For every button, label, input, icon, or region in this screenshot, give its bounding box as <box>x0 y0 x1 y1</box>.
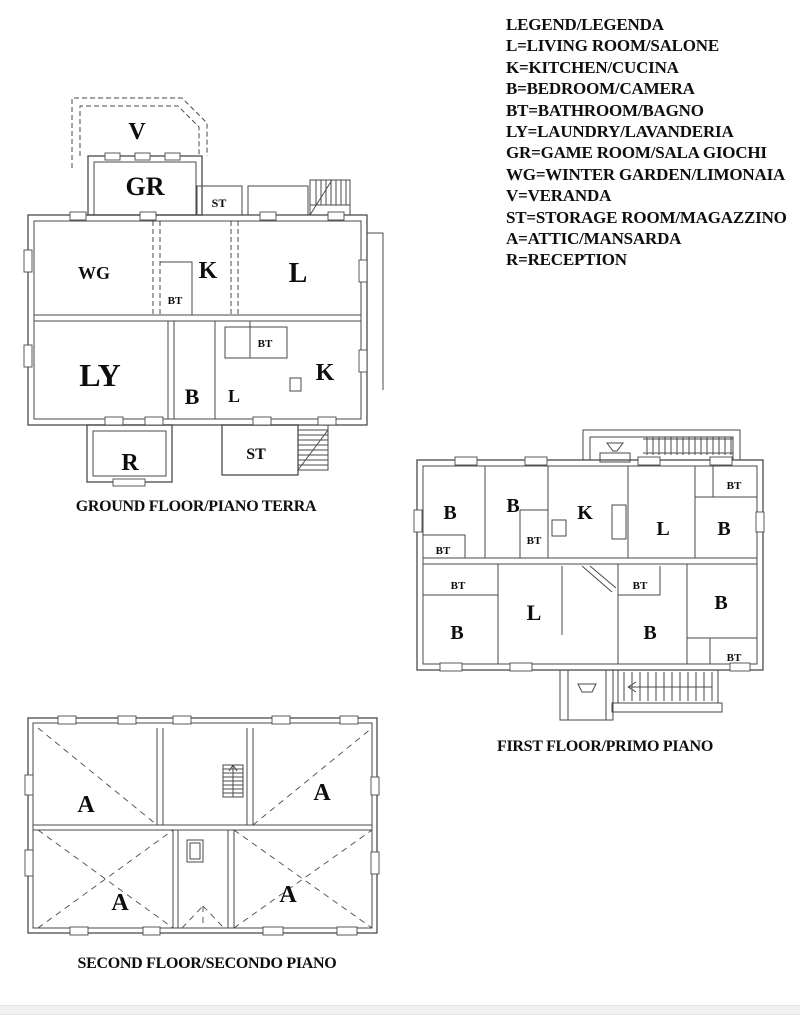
room-label-reception: R <box>121 450 139 476</box>
floor-plans-page: LEGEND/LEGENDA L=LIVING ROOM/SALONE K=KI… <box>0 0 800 1031</box>
room-label-wintergarden: WG <box>78 263 110 283</box>
footer-divider-bar <box>0 1005 800 1015</box>
room-label-bedroom-1: B <box>443 502 456 524</box>
room-label-bedroom-6: B <box>714 592 727 614</box>
room-label-bathroom-topright: BT <box>727 480 742 492</box>
room-label-bathroom-bottomleft: BT <box>451 580 466 592</box>
first-floor-walls <box>414 430 764 720</box>
room-label-bedroom-2: B <box>506 495 519 517</box>
room-label-attic-topright: A <box>313 780 331 806</box>
legend-entry-bedroom: B=BEDROOM/CAMERA <box>506 78 798 99</box>
room-label-laundry: LY <box>79 357 121 393</box>
legend-entry-kitchen: K=KITCHEN/CUCINA <box>506 57 798 78</box>
room-label-bedroom-3: B <box>717 518 730 540</box>
room-label-bedroom-4: B <box>450 622 463 644</box>
room-label-bathroom-mid: BT <box>258 338 273 350</box>
ground-floor-walls <box>24 98 383 486</box>
second-floor-walls <box>25 716 379 935</box>
room-label-bathroom-mid: BT <box>527 535 542 547</box>
room-label-attic-bottomright: A <box>279 882 297 908</box>
room-label-storage-bottom: ST <box>246 446 266 463</box>
room-label-attic-bottomleft: A <box>111 890 129 916</box>
room-label-living-top: L <box>656 518 669 540</box>
room-label-living-main: L <box>527 600 542 625</box>
room-label-living-top: L <box>289 258 308 289</box>
room-label-kitchen: K <box>577 502 593 524</box>
room-label-storage-top: ST <box>212 196 227 210</box>
room-label-kitchen-main: K <box>316 360 335 386</box>
ground-floor-caption: GROUND FLOOR/PIANO TERRA <box>10 498 382 516</box>
legend-entry-living: L=LIVING ROOM/SALONE <box>506 35 798 56</box>
second-floor-plan: A A A A <box>10 700 410 945</box>
room-label-attic-topleft: A <box>77 792 95 818</box>
legend-entry-storage: ST=STORAGE ROOM/MAGAZZINO <box>506 207 798 228</box>
room-label-bathroom-top: BT <box>168 295 183 307</box>
legend-entry-wintergarden: WG=WINTER GARDEN/LIMONAIA <box>506 164 798 185</box>
first-floor-plan: B B BT BT K L BT B BT B L BT B B BT <box>410 420 800 735</box>
legend-entry-bathroom: BT=BATHROOM/BAGNO <box>506 100 798 121</box>
room-label-bedroom-5: B <box>643 622 656 644</box>
legend-entry-veranda: V=VERANDA <box>506 185 798 206</box>
room-label-living-hall: L <box>228 386 240 406</box>
second-floor-caption: SECOND FLOOR/SECONDO PIANO <box>10 955 404 973</box>
legend: LEGEND/LEGENDA L=LIVING ROOM/SALONE K=KI… <box>506 14 798 271</box>
room-label-bathroom-left: BT <box>436 545 451 557</box>
legend-entry-laundry: LY=LAUNDRY/LAVANDERIA <box>506 121 798 142</box>
legend-title: LEGEND/LEGENDA <box>506 14 798 35</box>
room-label-gameroom: GR <box>126 172 165 201</box>
room-label-veranda: V <box>128 119 146 145</box>
room-label-bathroom-bottomright: BT <box>727 652 742 664</box>
ground-floor-plan: V GR ST WG K L BT LY B L BT K R ST <box>10 90 410 495</box>
first-floor-caption: FIRST FLOOR/PRIMO PIANO <box>410 738 800 756</box>
legend-entry-gameroom: GR=GAME ROOM/SALA GIOCHI <box>506 142 798 163</box>
legend-entry-attic: A=ATTIC/MANSARDA <box>506 228 798 249</box>
room-label-bathroom-bottommid: BT <box>633 580 648 592</box>
legend-entry-reception: R=RECEPTION <box>506 249 798 270</box>
room-label-bedroom-hall: B <box>185 384 200 409</box>
room-label-kitchen-top: K <box>199 258 218 284</box>
